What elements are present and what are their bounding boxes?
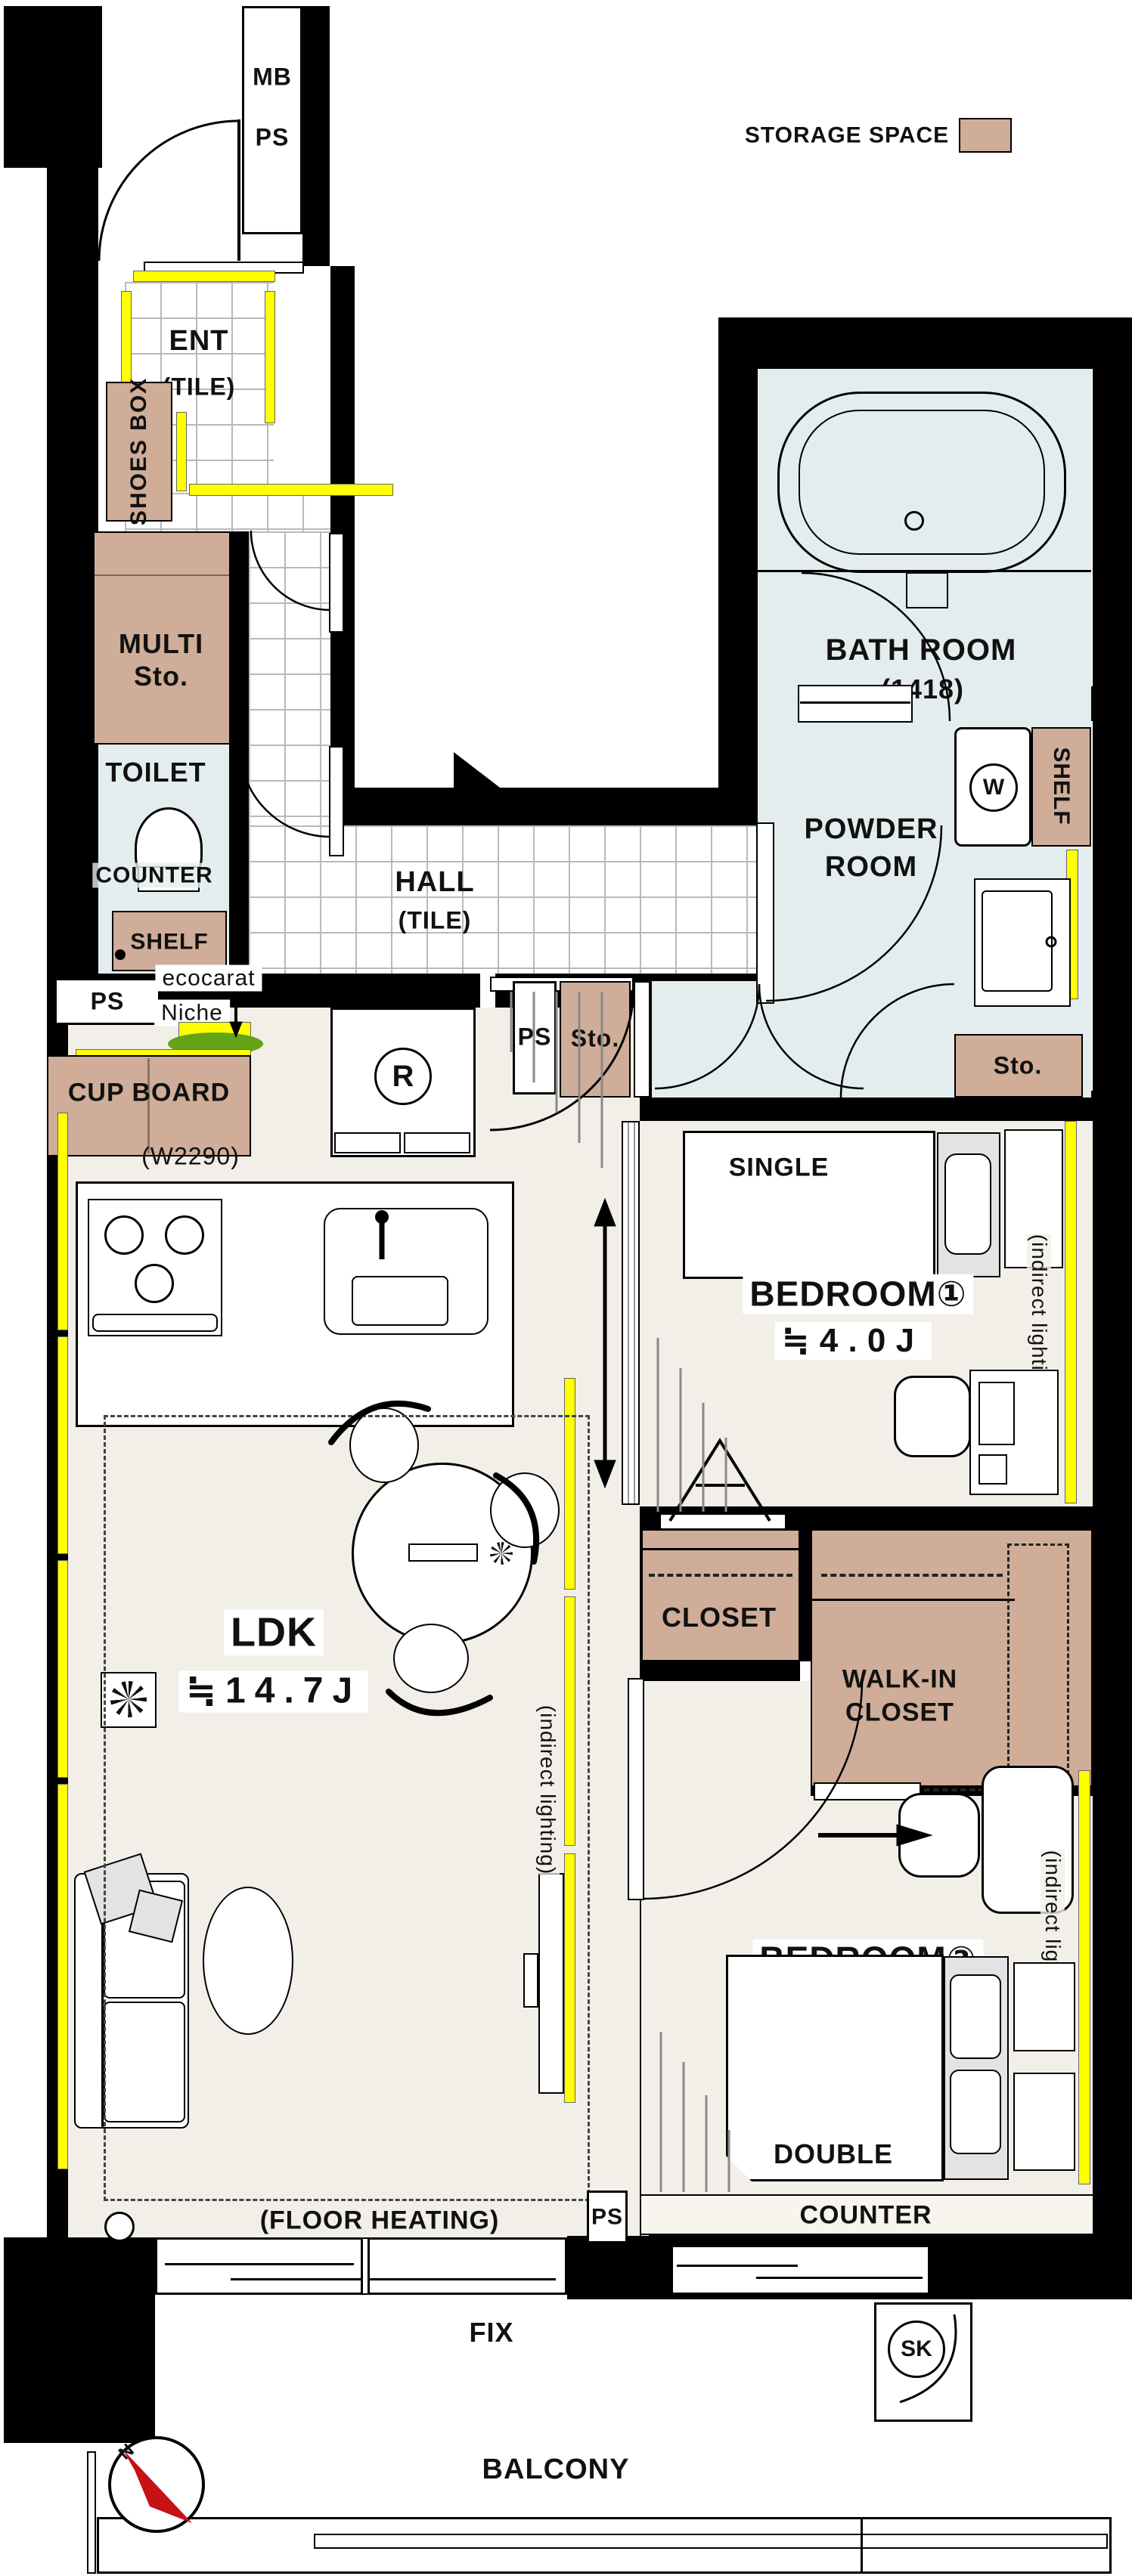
wall (47, 168, 98, 974)
vanity-basin (982, 890, 1053, 992)
bedroom1-label: BEDROOM① (743, 1274, 973, 1314)
ps-bottom-label: PS (591, 2205, 623, 2230)
bedroom1-indirect-highlight (1065, 1121, 1077, 1503)
sk-label: SK (901, 2336, 932, 2362)
floor-heating-label: (FLOOR HEATING) (260, 2206, 500, 2234)
bath-drain (904, 511, 924, 531)
multi-storage-divider (95, 574, 229, 576)
bedroom1-size-label: ≒4.0J (775, 1322, 932, 1360)
shoes-box-label: SHOES BOX (126, 377, 152, 525)
meter-box-mb-label: MB (253, 63, 292, 90)
multi-storage-label2: Sto. (134, 661, 188, 692)
floor-plan: MB PS STORAGE SPACE ENT (TILE) SHOES BOX… (0, 0, 1132, 2576)
storage-legend-swatch (959, 118, 1012, 153)
wic-line (812, 1599, 1015, 1601)
hall-floor-label: (TILE) (399, 907, 472, 933)
window-highlight (57, 1113, 68, 1330)
powder-label1: POWDER (805, 814, 938, 846)
ent-label: ENT (169, 326, 229, 358)
hall-floor (249, 531, 330, 825)
ldk-window-line (165, 2263, 354, 2265)
closet-shelf-line (643, 1548, 799, 1550)
bath-faucet-notch (906, 572, 948, 608)
window-highlight (57, 1336, 68, 1554)
single-bed-pillow (944, 1153, 991, 1255)
fridge-base (334, 1132, 401, 1153)
double-bed-pillow (950, 2070, 1001, 2154)
balcony-label: BALCONY (482, 2454, 630, 2486)
toilet-dot (115, 949, 126, 960)
bath-door-sill (798, 685, 913, 723)
wall (318, 974, 480, 1008)
bathtub-inner (799, 410, 1045, 555)
bedroom1-sliding-track (622, 1121, 640, 1505)
easel-base (659, 1513, 786, 1530)
washer-circle: W (969, 763, 1018, 812)
double-bed-pillow (950, 1974, 1001, 2059)
wall (756, 317, 1104, 369)
wall (718, 317, 758, 825)
fridge-label: R (392, 1060, 414, 1094)
floor-lamp (104, 2212, 135, 2242)
wall (4, 6, 102, 168)
double-bed-label: DOUBLE (774, 2139, 893, 2169)
wic-rod (821, 1574, 1003, 1577)
wall-outer-right (1093, 317, 1132, 2298)
ps-mid-label: PS (518, 1023, 552, 1050)
floor-heating-area (104, 1415, 590, 2201)
toilet-door-leaf (329, 746, 344, 856)
wic-label2: CLOSET (845, 1698, 954, 1726)
kitchen-width-label: (W2290) (141, 1143, 240, 1169)
bedroom2-window-line (756, 2277, 923, 2279)
meter-box (242, 6, 302, 234)
balcony-rail-post (87, 2451, 96, 2574)
wic-door-track (814, 1782, 921, 1800)
bedroom1-monitor (978, 1382, 1015, 1445)
bath-door-line (800, 701, 910, 704)
burner (165, 1215, 204, 1255)
stove-front (92, 1314, 218, 1332)
powder-shelf-label: SHELF (1048, 747, 1074, 825)
single-bed-label: SINGLE (729, 1153, 830, 1181)
bedroom2-window (671, 2245, 930, 2295)
wall (229, 529, 249, 977)
sto-door-track (634, 981, 650, 1098)
ps-toilet-label: PS (91, 988, 125, 1014)
ecocarat-label: ecocarat (155, 965, 262, 992)
fridge-base (404, 1132, 470, 1153)
sk-circle: SK (888, 2321, 945, 2378)
powder-bifold-floor (652, 981, 758, 1098)
window-highlight (57, 1784, 68, 2169)
bedroom2-door-leaf (628, 1678, 644, 1900)
ent-floor-label: (TILE) (163, 373, 236, 400)
closet-label: CLOSET (662, 1602, 777, 1633)
closet-rod (649, 1574, 792, 1577)
ent-side-highlight (265, 291, 275, 423)
wic-side-shelf (1007, 1543, 1069, 1775)
powder-door-leaf (756, 822, 774, 1004)
bedroom2-window-line (677, 2265, 798, 2267)
fix-window-label: FIX (469, 2317, 513, 2348)
hall-label: HALL (395, 867, 474, 899)
burner (135, 1264, 174, 1303)
wic-label1: WALK-IN (842, 1665, 957, 1693)
kitchen-sink (352, 1276, 448, 1326)
bedside-table (1013, 2073, 1075, 2171)
ldk-window-mullion (361, 2239, 370, 2293)
multi-storage-label1: MULTI (119, 629, 203, 659)
bedroom2-chair (898, 1793, 980, 1878)
wall (800, 1529, 811, 1661)
burner (104, 1215, 144, 1255)
ldk-window-line (231, 2278, 556, 2280)
wall-bottom (930, 2236, 1132, 2299)
wall (355, 788, 756, 827)
bedroom2-indirect-highlight (1078, 1770, 1090, 2184)
powder-label2: ROOM (825, 852, 917, 884)
sto-right-label: Sto. (994, 1052, 1042, 1079)
storage-legend-label: STORAGE SPACE (745, 123, 949, 148)
hall-floor (249, 825, 758, 974)
toilet-label: TOILET (105, 757, 206, 788)
bedroom1-chair (894, 1376, 971, 1457)
wall-diagonal (454, 752, 503, 790)
bedroom1-desk-item (978, 1454, 1007, 1485)
bedroom2-counter-label: COUNTER (799, 2201, 932, 2229)
wall (302, 6, 330, 266)
meter-box-ps-label: PS (256, 124, 290, 150)
fridge-circle: R (374, 1048, 432, 1105)
ent-sill-highlight (133, 271, 275, 282)
cup-board-label: CUP BOARD (68, 1079, 230, 1107)
toilet-counter-label: COUNTER (92, 863, 216, 888)
balcony-rail-inner (314, 2534, 1108, 2549)
hall-step-highlight (189, 484, 393, 496)
bedside-table (1013, 1962, 1075, 2051)
window-highlight (57, 1560, 68, 1778)
balcony-rail-divider (861, 2519, 863, 2572)
sto-left-label: Sto. (571, 1025, 619, 1051)
toilet-shelf-label: SHELF (130, 930, 208, 955)
ent-step-highlight (176, 412, 187, 491)
washer-label: W (983, 775, 1004, 800)
entry-door-arc (99, 121, 239, 261)
wall-closet-bottom (641, 1661, 800, 1681)
bath-label: BATH ROOM (826, 633, 1017, 667)
wall-bottom-left-block (4, 2237, 155, 2443)
multi-door-leaf (329, 533, 344, 633)
